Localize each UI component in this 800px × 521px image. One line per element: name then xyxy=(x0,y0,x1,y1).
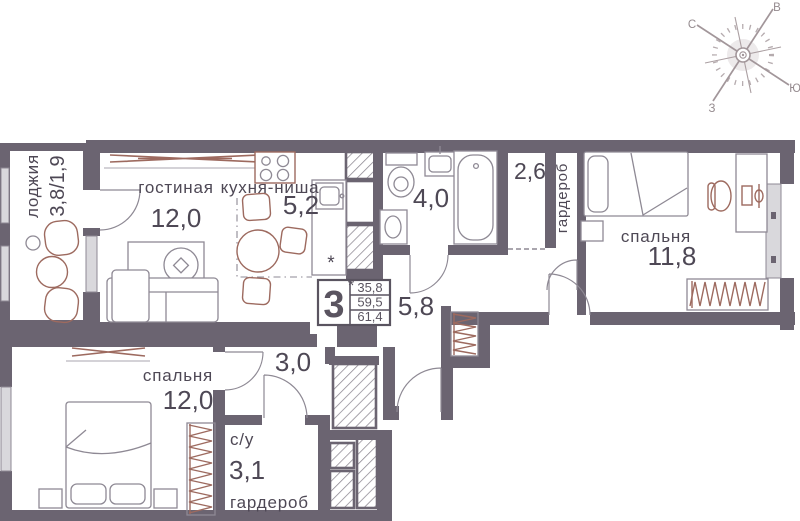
floorplan-canvas: лоджия 3,8/1,9 гостиная 12,0 кухня-ниша … xyxy=(0,0,800,521)
window-loggia-1 xyxy=(1,168,9,223)
room-area-living: 12,0 xyxy=(151,203,202,233)
stool-icon xyxy=(242,193,271,221)
window-loggia-2 xyxy=(1,246,9,301)
kitchen-note-mark: * xyxy=(327,253,335,274)
room-label-su: с/у xyxy=(230,430,254,449)
stool-icon xyxy=(279,226,307,254)
coffee-table-icon xyxy=(164,248,198,282)
wall-top-main xyxy=(86,140,375,153)
bathtub-icon xyxy=(454,151,497,244)
room-label-living: гостиная xyxy=(138,178,214,197)
room-area-bathroom: 4,0 xyxy=(413,183,449,213)
room-area-su: 3,1 xyxy=(229,455,265,485)
stool-icon xyxy=(242,277,271,305)
wall-entry-left xyxy=(383,347,395,410)
nightstand-icon xyxy=(154,489,177,508)
room-area-loggia: 3,8/1,9 xyxy=(47,155,69,216)
info-area-3: 61,4 xyxy=(357,309,382,324)
dining-table-icon xyxy=(237,230,279,272)
wall-su-right xyxy=(318,415,330,511)
room-area-bedroom-left: 12,0 xyxy=(163,385,214,415)
nightstand-icon xyxy=(581,221,603,241)
compass-south-label: Ю xyxy=(789,83,800,95)
room-label-wardrobe-lower: гардероб xyxy=(230,493,309,512)
info-box: 3 * 35,8 59,5 61,4 xyxy=(318,276,390,326)
info-rooms-count: 3 xyxy=(323,284,344,326)
wall-living-bottom xyxy=(83,322,310,334)
compass-north-label: С xyxy=(688,19,696,31)
room-label-wardrobe-upper: гардероб xyxy=(554,163,571,233)
compass-west-label: З xyxy=(709,103,716,115)
washing-machine-icon xyxy=(380,210,407,244)
window-loggia-living xyxy=(86,236,97,292)
double-bed-icon xyxy=(66,402,151,508)
wall-bathroom-right xyxy=(497,140,508,252)
compass-east-label: В xyxy=(773,2,781,14)
room-label-loggia: лоджия xyxy=(23,154,42,218)
floorplan-svg: лоджия 3,8/1,9 гостиная 12,0 кухня-ниша … xyxy=(0,0,800,521)
room-area-hall-upper: 2,6 xyxy=(514,158,546,184)
wall-right-outer-top xyxy=(780,140,794,184)
room-area-kitchen: 5,2 xyxy=(283,190,319,220)
window-bedroom-left xyxy=(1,387,11,471)
info-area-2: 59,5 xyxy=(357,295,382,310)
room-area-bedroom-right: 11,8 xyxy=(648,241,697,271)
bed-icon xyxy=(584,152,688,216)
window-bedroom-right xyxy=(766,184,781,278)
wall-bedroomleft-outer xyxy=(0,347,12,387)
wall-bedroomleft-top xyxy=(0,334,228,347)
info-area-1: 35,8 xyxy=(357,280,382,295)
room-area-hall-lower: 3,0 xyxy=(275,347,311,377)
room-label-bedroom-left: спальня xyxy=(143,366,213,385)
room-area-corridor: 5,8 xyxy=(398,291,434,321)
toilet-icon xyxy=(386,153,417,165)
chair-icon xyxy=(711,181,731,211)
wall-loggia-top xyxy=(0,143,86,151)
info-note-mark: * xyxy=(348,276,355,295)
wall-wing-bottom-right xyxy=(590,312,795,325)
nightstand-icon xyxy=(39,489,62,508)
wall-wing-bottom-left xyxy=(443,312,549,325)
